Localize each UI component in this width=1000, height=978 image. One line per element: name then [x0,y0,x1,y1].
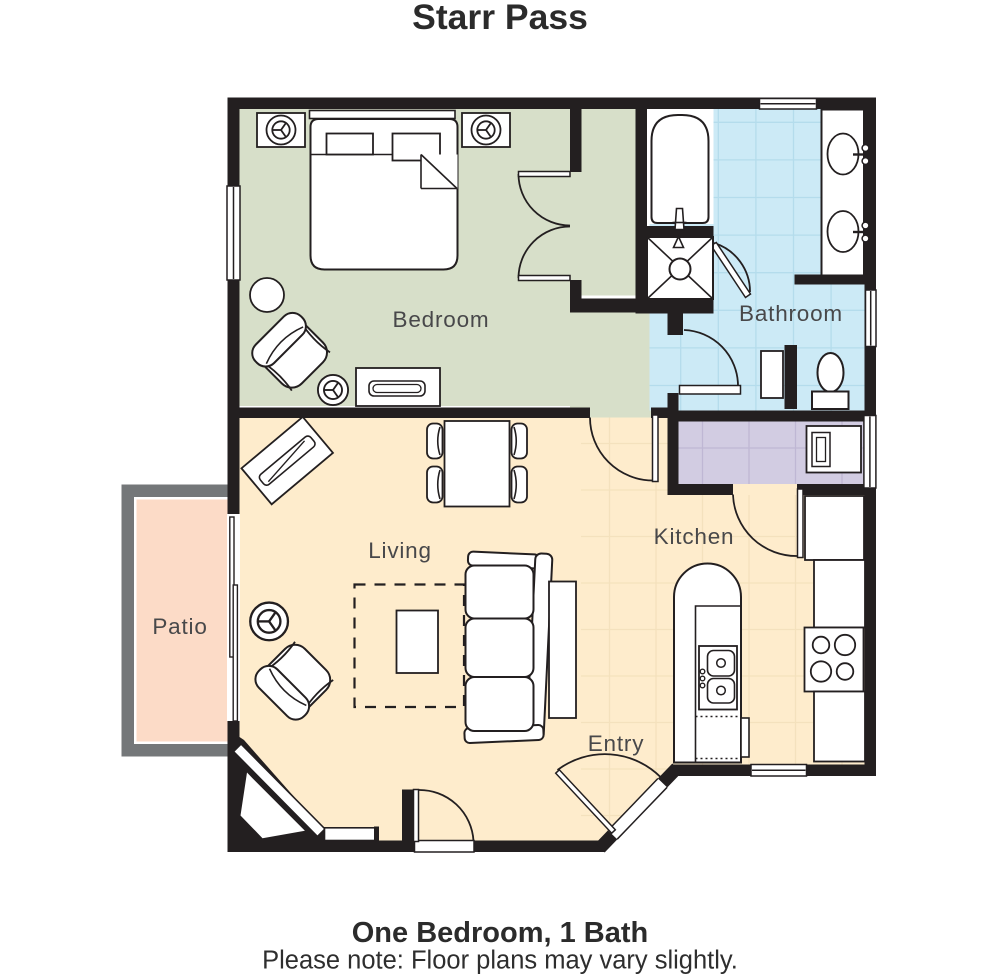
svg-text:Entry: Entry [588,731,645,756]
svg-text:Living: Living [368,538,432,563]
svg-text:One Bedroom, 1 Bath: One Bedroom, 1 Bath [352,917,649,949]
svg-text:Bathroom: Bathroom [739,301,843,326]
svg-text:Bedroom: Bedroom [393,307,490,332]
svg-text:Patio: Patio [152,614,207,639]
svg-text:Kitchen: Kitchen [654,524,735,549]
svg-text:Starr Pass: Starr Pass [412,0,588,37]
svg-text:Please note: Floor plans may v: Please note: Floor plans may vary slight… [262,947,738,975]
